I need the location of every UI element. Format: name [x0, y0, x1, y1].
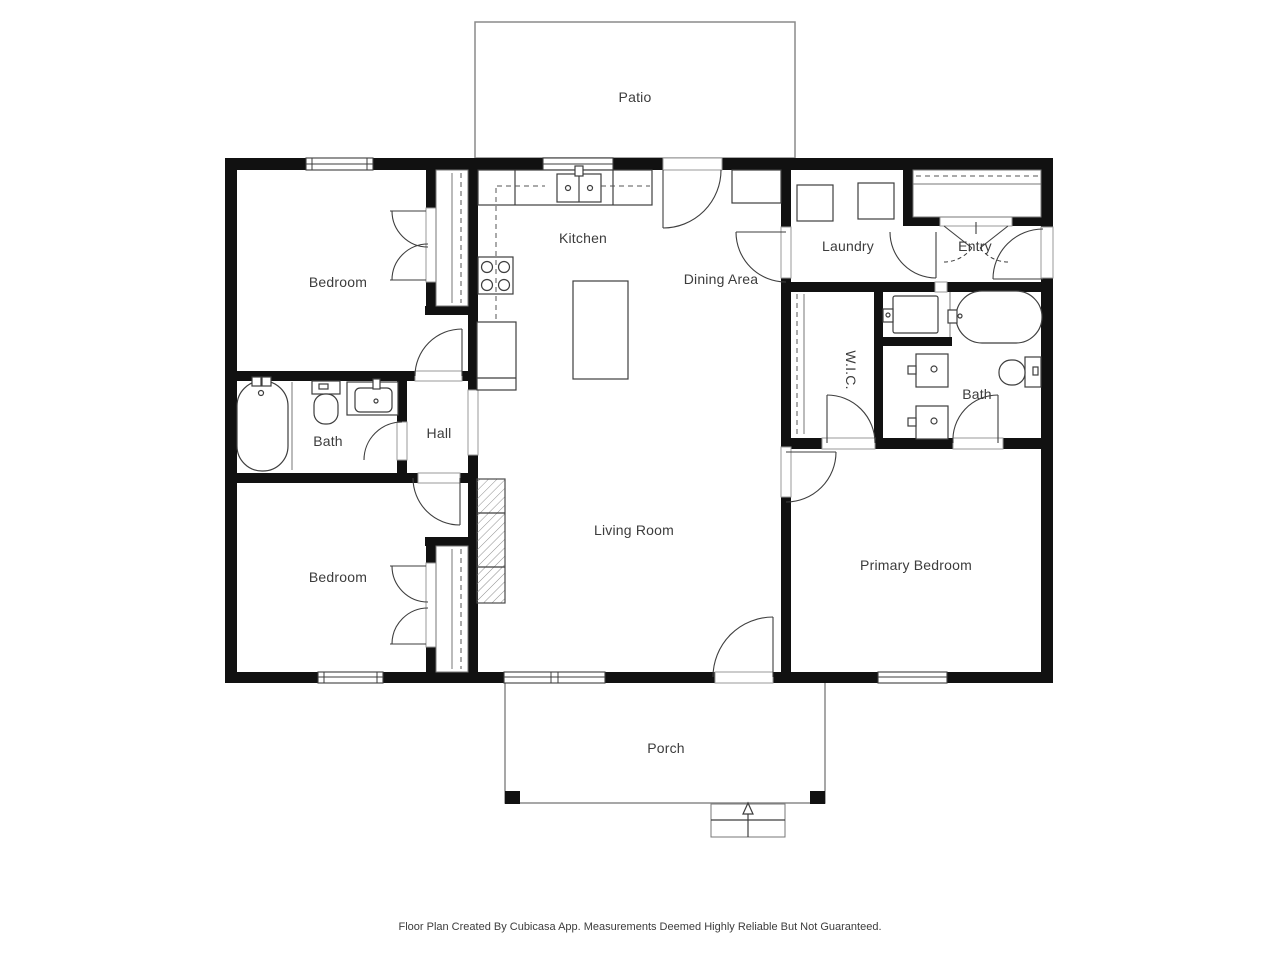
bathtub [237, 377, 288, 471]
room-label-primary-bedroom: Primary Bedroom [860, 557, 972, 573]
room-label-bath-left: Bath [313, 433, 343, 449]
dining-cabinet [732, 170, 781, 203]
window-glyph [504, 672, 605, 683]
porch-post-left [505, 791, 520, 804]
window-glyph [306, 158, 373, 170]
floor-plan-page: Patio Kitchen Dining Area Laundry Entry … [0, 0, 1280, 960]
toilet [312, 381, 340, 424]
toilet [999, 357, 1041, 387]
room-label-porch: Porch [647, 740, 685, 756]
kitchen-island [573, 281, 628, 379]
laundry-fixtures-layer [797, 183, 894, 221]
window-glyph [318, 672, 383, 683]
front-door-swing [993, 229, 1043, 279]
entrance-stairs [711, 803, 785, 837]
room-label-bedroom-top: Bedroom [309, 274, 367, 290]
room-label-patio: Patio [619, 89, 652, 105]
room-label-wic: W.I.C. [843, 350, 859, 389]
room-label-kitchen: Kitchen [559, 230, 607, 246]
closet-bifold-doors-bottom [390, 566, 428, 644]
room-label-bath-right: Bath [962, 386, 992, 402]
sink-vanity [908, 406, 948, 439]
fireplace-hatch [477, 479, 505, 603]
laundry-entry-door-swing [890, 232, 936, 278]
bath-left-door-swing [364, 422, 402, 460]
bath-right-door-swing [953, 395, 998, 443]
bedroom-bottom-door-swing [413, 478, 460, 525]
room-label-laundry: Laundry [822, 238, 874, 254]
bedroom-top-door-swing [415, 329, 462, 376]
room-label-entry: Entry [958, 238, 992, 254]
patio-door-swing [663, 170, 721, 228]
sink-vanity [908, 354, 948, 387]
refrigerator [477, 322, 516, 390]
shower [883, 292, 950, 337]
footer-disclaimer: Floor Plan Created By Cubicasa App. Meas… [398, 921, 881, 933]
bath-left-fixtures-layer [237, 377, 398, 471]
porch-post-right [810, 791, 825, 804]
bathtub [948, 291, 1042, 343]
room-label-bedroom-bottom: Bedroom [309, 569, 367, 585]
room-label-hall: Hall [427, 425, 452, 441]
bath-right-fixtures-layer [883, 291, 1042, 439]
floor-plan-drawing [0, 0, 1280, 960]
sink-vanity [347, 379, 398, 415]
room-label-living-room: Living Room [594, 522, 674, 538]
window-glyph [878, 672, 947, 683]
wic-door-swing [827, 395, 875, 443]
stairs-up-arrow-icon [743, 803, 753, 814]
porch-door-swing [713, 617, 773, 677]
room-label-dining-area: Dining Area [684, 271, 759, 287]
washer [797, 185, 833, 221]
primary-bedroom-door-swing [786, 452, 836, 502]
door-openings-layer [397, 158, 1053, 683]
dryer [858, 183, 894, 219]
closet-bifold-doors-top [390, 211, 428, 280]
closets-layer [436, 170, 1041, 672]
